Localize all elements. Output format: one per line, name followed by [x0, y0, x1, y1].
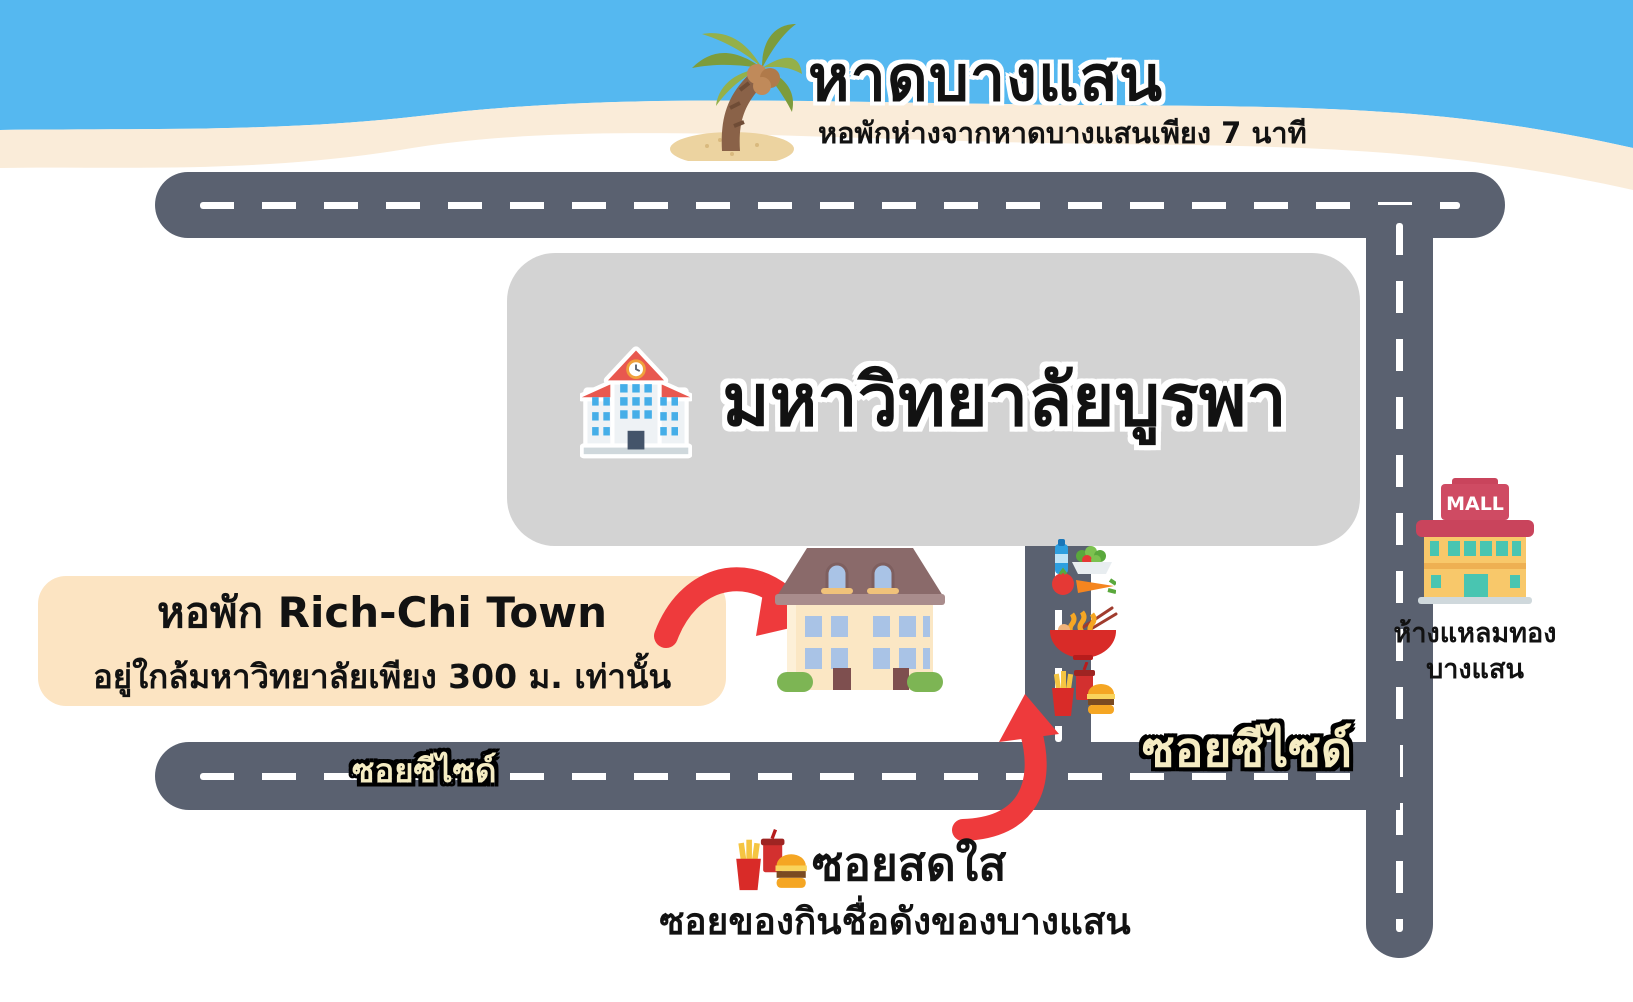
- map-canvas: หาดบางแสน หอพักห่างจากหาดบางแสนเพียง 7 น…: [0, 0, 1633, 1002]
- mall-name-line1: ห้างแหลมทอง: [1390, 616, 1560, 652]
- mall-name: ห้างแหลมทอง บางแสน: [1390, 616, 1560, 689]
- healthy-food-icon: [1050, 536, 1116, 598]
- soi-sodsai-description: ซอยของกินชื่อดังของบางแสน: [645, 892, 1145, 951]
- callout-dorm-distance: อยู่ใกล้มหาวิทยาลัยเพียง 300 ม. เท่านั้น: [93, 650, 671, 703]
- road-label-seaside-left: ซอยซีไซด์: [352, 744, 496, 797]
- road-centerline: [200, 202, 1460, 209]
- university-block: มหาวิทยาลัยบูรพา: [507, 253, 1360, 546]
- callout-dorm-name: หอพัก Rich-Chi Town: [157, 580, 607, 646]
- page-subtitle: หอพักห่างจากหาดบางแสนเพียง 7 นาที: [818, 110, 1307, 156]
- top-road: [155, 172, 1505, 238]
- mall-icon: MALL: [1408, 476, 1542, 606]
- mall-name-line2: บางแสน: [1390, 652, 1560, 688]
- soi-sodsai-icon: [734, 828, 808, 894]
- noodle-bowl-icon: [1048, 604, 1118, 662]
- mall-sign-label: MALL: [1446, 493, 1504, 515]
- road-label-seaside-right: ซอยซีไซด์: [1142, 712, 1352, 788]
- dorm-building-icon: [775, 538, 945, 702]
- palm-tree-icon: [662, 16, 802, 161]
- university-building-icon: [580, 341, 692, 459]
- university-name: มหาวิทยาลัยบูรพา: [722, 342, 1286, 457]
- soi-sodsai-label: ซอยสดใส: [812, 828, 1006, 901]
- road-centerline: [1396, 223, 1403, 932]
- dorm-callout: หอพัก Rich-Chi Town อยู่ใกล้มหาวิทยาลัยเ…: [38, 576, 726, 706]
- arrow-to-soi-icon: [935, 678, 1080, 848]
